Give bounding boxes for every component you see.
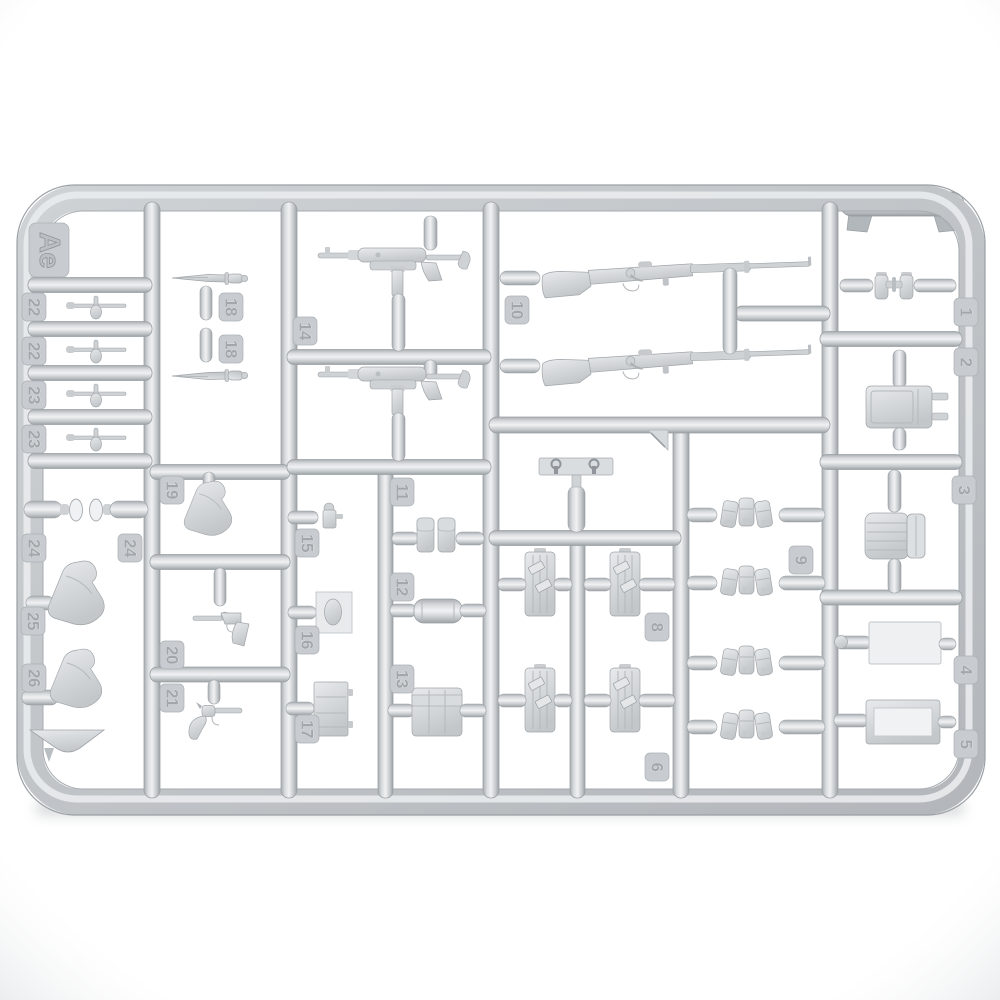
photo-vignette [0,0,1000,1000]
photo-of-model-kit-sprue: Ae 22 22 23 23 24 24 25 26 18 18 19 20 2… [0,0,1000,1000]
